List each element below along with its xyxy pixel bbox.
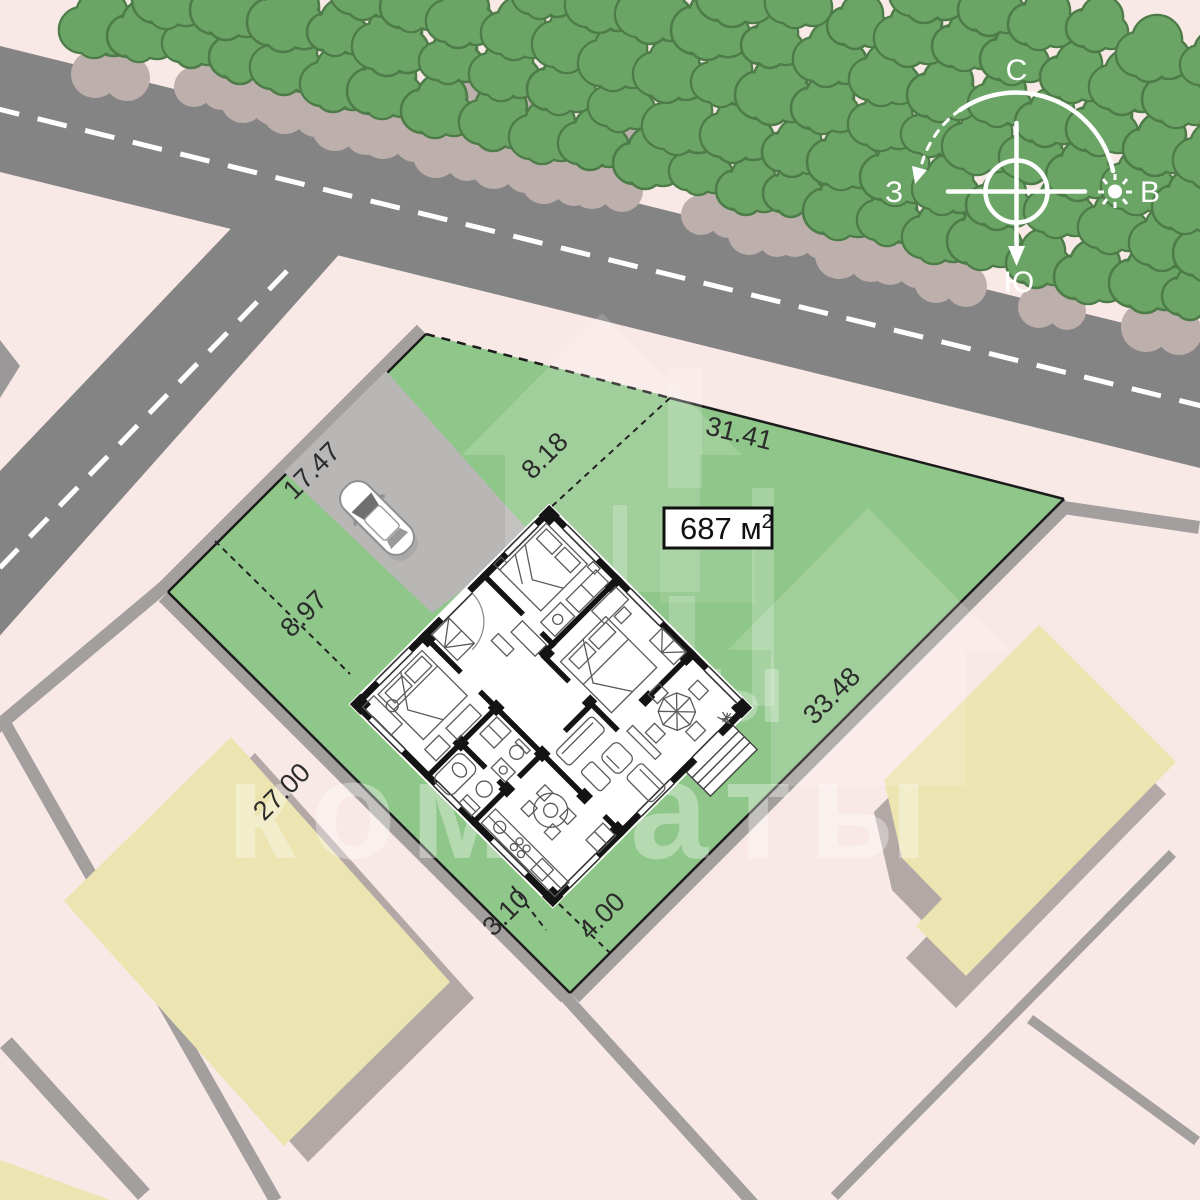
svg-text:З: З [885, 176, 903, 209]
svg-text:Ю: Ю [1004, 266, 1034, 299]
svg-text:687 м2: 687 м2 [680, 511, 773, 546]
svg-text:В: В [1140, 176, 1160, 209]
svg-text:С: С [1006, 54, 1028, 87]
